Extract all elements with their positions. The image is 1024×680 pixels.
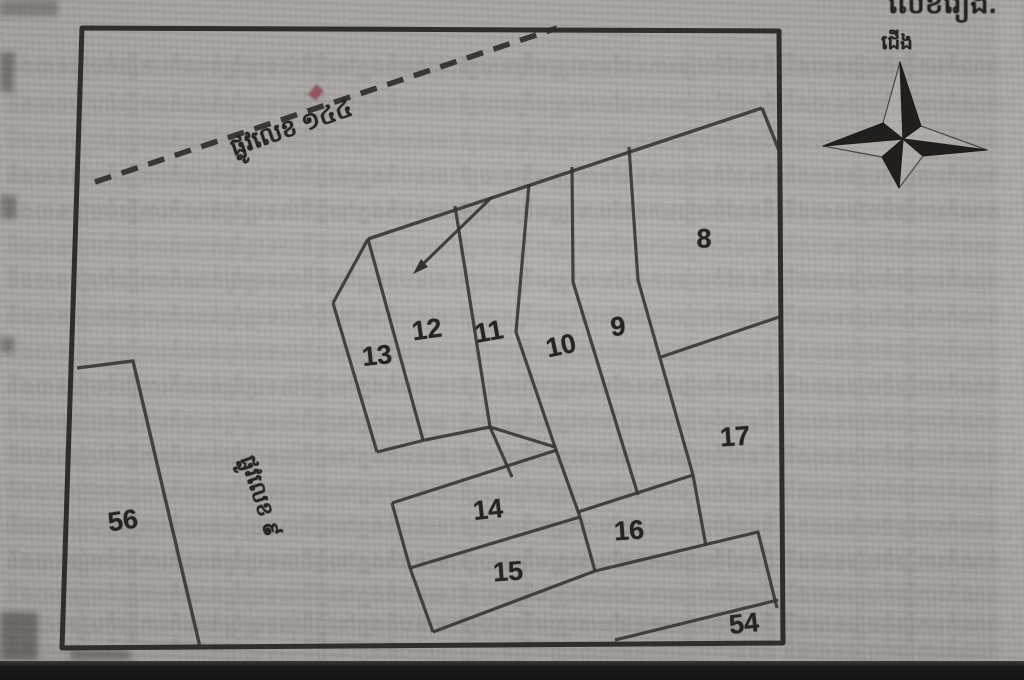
p13-left-upper <box>333 239 368 303</box>
top-diagonal <box>368 108 762 239</box>
p12-bottom <box>425 427 490 440</box>
p16-top <box>578 475 693 512</box>
parcel-label-17: 17 <box>719 420 751 453</box>
parcel-label-14: 14 <box>471 493 504 527</box>
p13-bottom <box>377 440 425 452</box>
arrow-annotation-shaft <box>423 197 492 264</box>
parcel56-boundary <box>77 361 200 647</box>
parcel-label-54: 54 <box>727 607 760 641</box>
b11-10 <box>516 184 595 571</box>
cut-off-text-fragment: លេខរៀង. <box>888 0 997 28</box>
p16-right <box>693 475 706 546</box>
p11-bottom <box>490 427 555 447</box>
parcel-label-15: 15 <box>492 555 524 588</box>
parcel-label-16: 16 <box>613 514 645 547</box>
parcel-label-10: 10 <box>543 328 579 365</box>
photo-bottom-band <box>0 661 1024 680</box>
parcel-label-11: 11 <box>472 314 505 349</box>
parcel-label-8: 8 <box>696 224 711 255</box>
scanned-cadastral-map-page: នឹងបានរៀបចំធ្វើការកំណត់ព្រំប្រទល់ដីធ្លីន… <box>0 0 1024 680</box>
compass-north-label: ជើង <box>881 29 913 59</box>
parcel-label-9: 9 <box>609 311 627 343</box>
b9-right <box>629 147 693 475</box>
p13-left-lower <box>333 303 377 452</box>
parcel-label-12: 12 <box>410 313 444 348</box>
b8-17 <box>661 317 779 357</box>
parcel-label-56: 56 <box>106 504 140 539</box>
b10-9 <box>572 167 638 495</box>
parcel-label-13: 13 <box>360 339 393 373</box>
compass-icon-dark-blade <box>900 62 921 139</box>
